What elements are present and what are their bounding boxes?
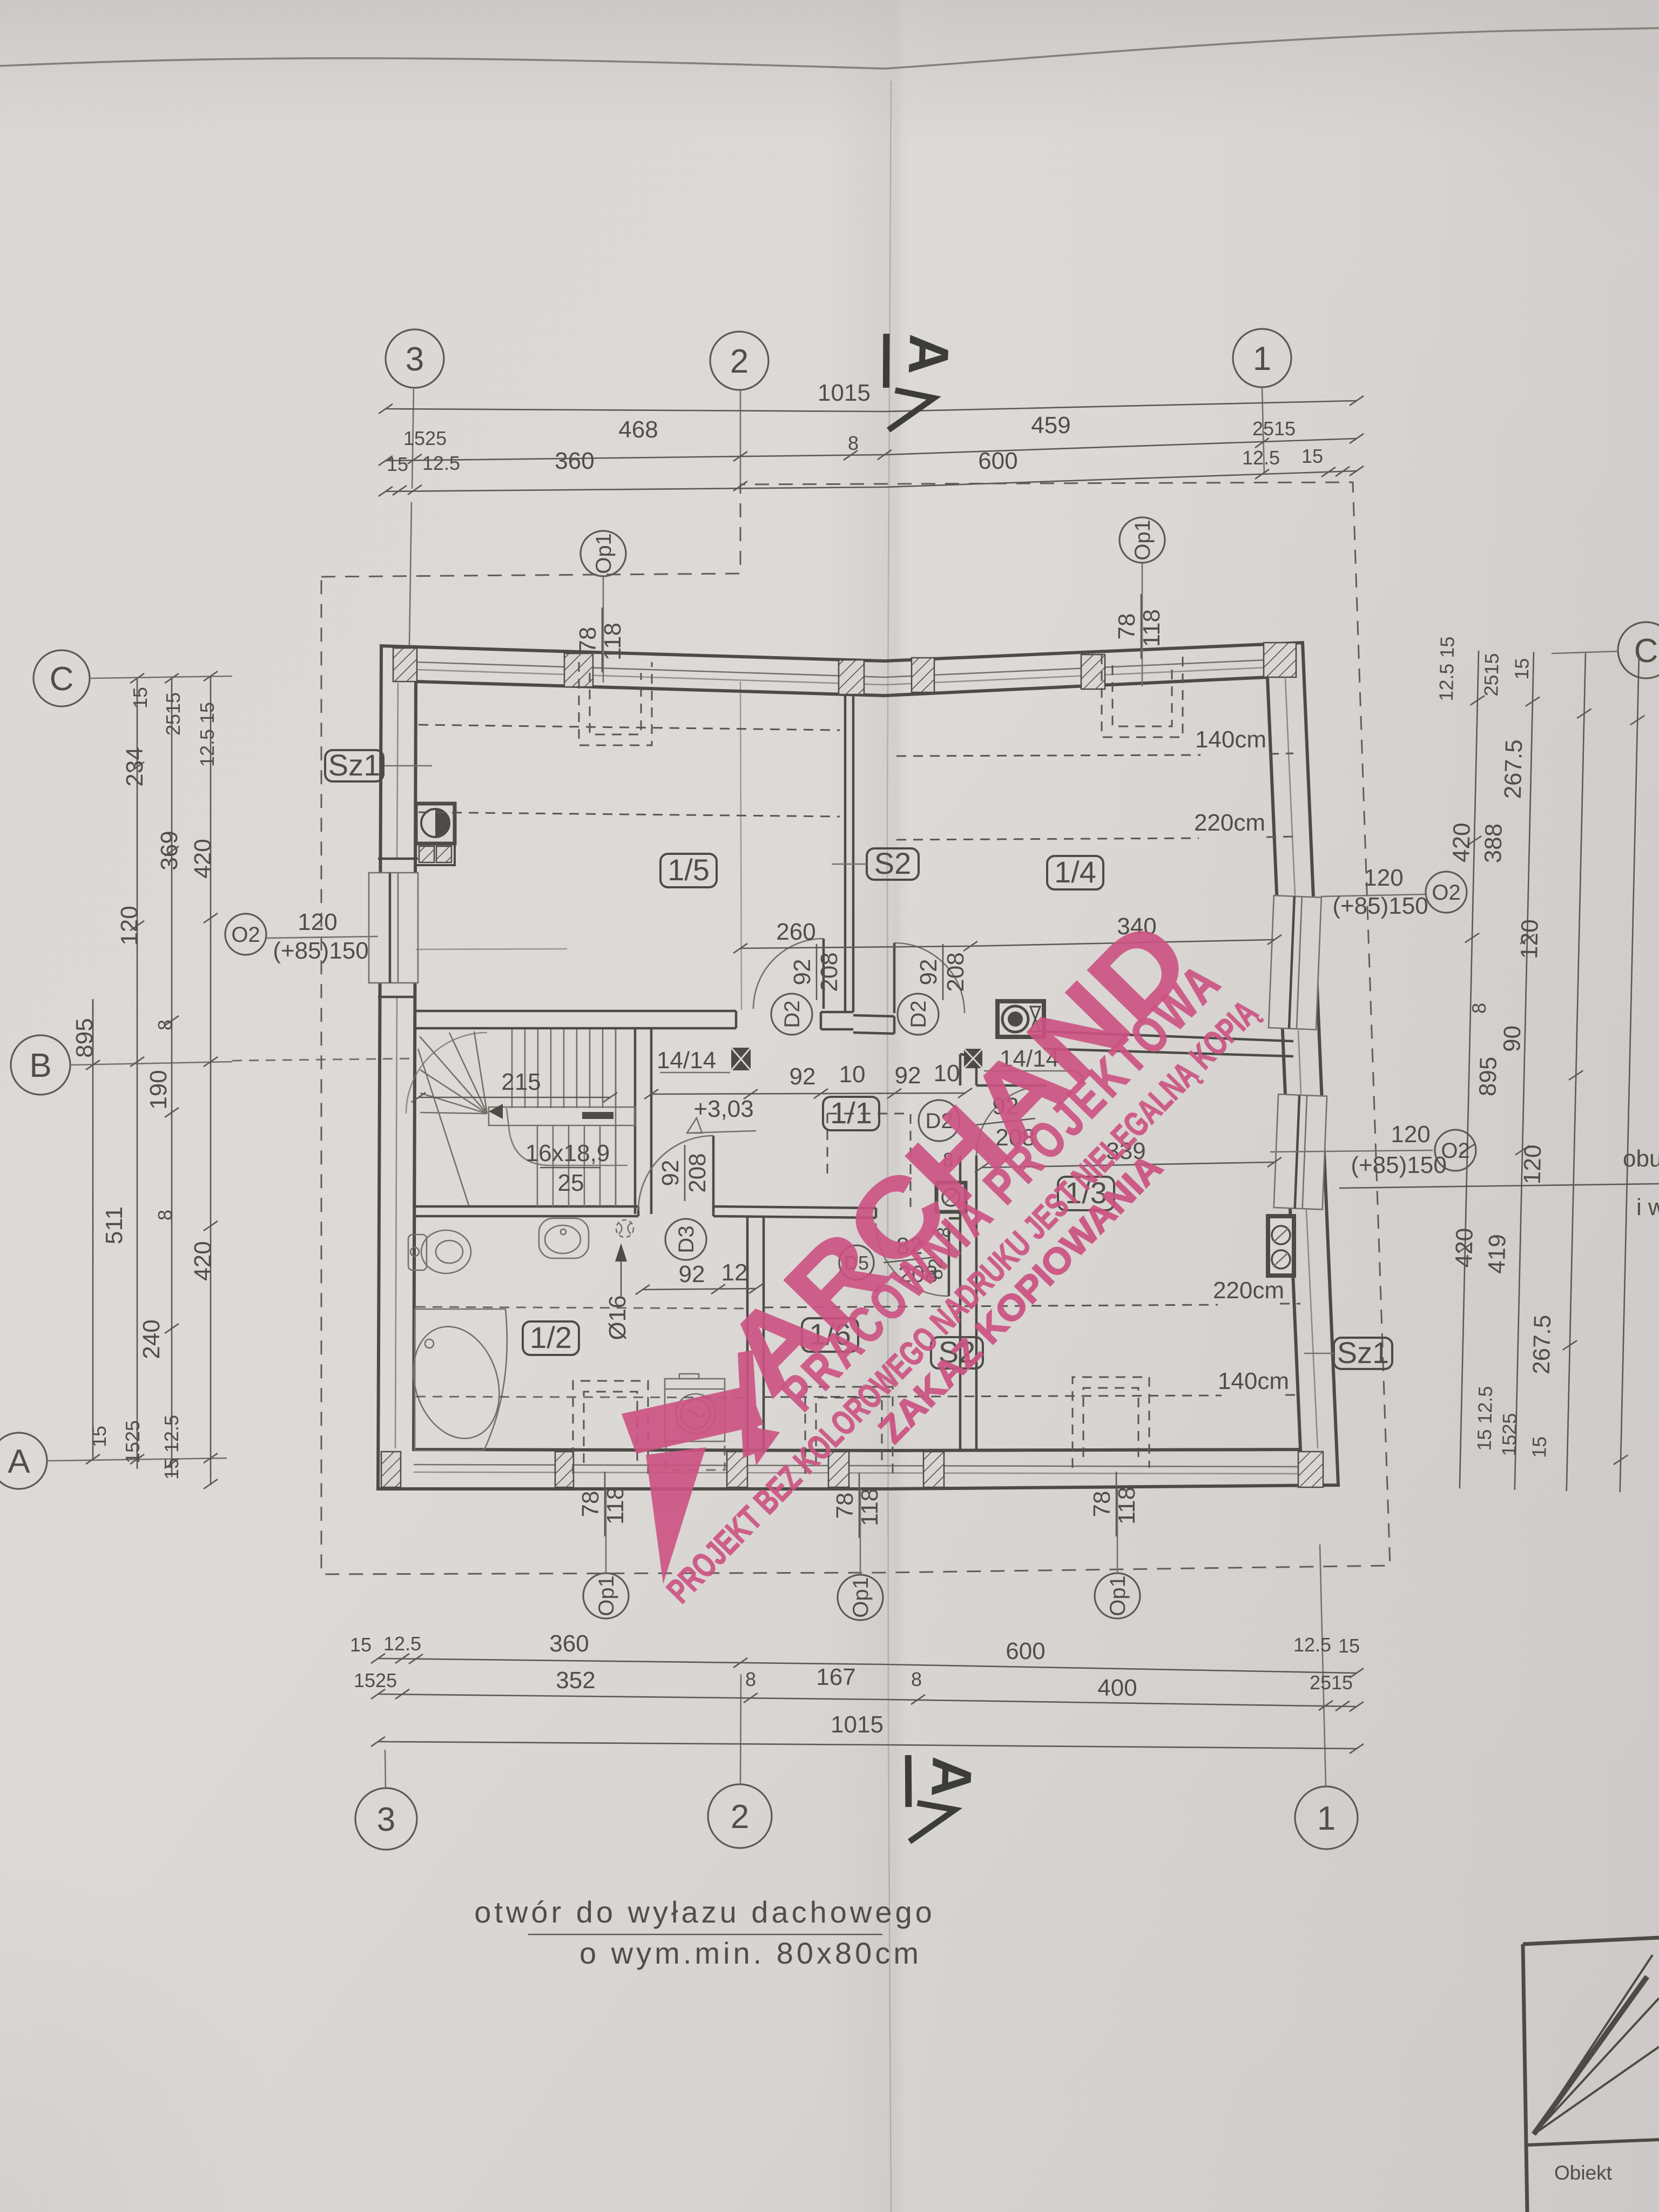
- svg-text:895: 895: [71, 1018, 98, 1057]
- svg-text:78: 78: [1089, 1491, 1115, 1518]
- svg-text:208: 208: [816, 952, 842, 992]
- svg-text:15: 15: [1510, 658, 1533, 680]
- svg-text:1525: 1525: [122, 1420, 144, 1464]
- svg-text:120: 120: [1391, 1121, 1430, 1148]
- svg-text:1: 1: [1317, 1800, 1336, 1837]
- svg-text:14/14: 14/14: [657, 1047, 716, 1074]
- svg-text:400: 400: [1097, 1675, 1137, 1701]
- svg-text:118: 118: [1114, 1487, 1140, 1525]
- svg-text:Op1: Op1: [1131, 520, 1155, 561]
- svg-text:140cm: 140cm: [1218, 1368, 1289, 1394]
- svg-text:895: 895: [1474, 1056, 1502, 1097]
- svg-text:120: 120: [1519, 1144, 1547, 1185]
- svg-text:240: 240: [138, 1319, 165, 1359]
- svg-text:1/4: 1/4: [1054, 855, 1096, 889]
- svg-text:2515: 2515: [1310, 1671, 1353, 1694]
- svg-text:468: 468: [618, 416, 658, 443]
- svg-text:8: 8: [154, 1020, 176, 1030]
- svg-text:otwór do wyłazu dachowego: otwór do wyłazu dachowego: [474, 1895, 935, 1929]
- svg-text:78: 78: [575, 627, 601, 653]
- svg-text:92: 92: [915, 959, 942, 986]
- svg-text:1/2: 1/2: [530, 1320, 572, 1354]
- svg-text:Obiekt: Obiekt: [1554, 2162, 1613, 2184]
- svg-text:(+85)150: (+85)150: [1332, 893, 1428, 919]
- svg-text:15: 15: [1528, 1436, 1550, 1458]
- svg-text:15: 15: [129, 687, 151, 709]
- svg-text:220cm: 220cm: [1194, 810, 1265, 836]
- svg-text:120: 120: [116, 906, 143, 945]
- svg-text:15: 15: [1301, 445, 1323, 467]
- svg-text:8: 8: [911, 1668, 922, 1690]
- svg-text:15: 15: [1338, 1635, 1360, 1657]
- svg-text:15: 15: [350, 1634, 372, 1656]
- svg-text:C: C: [1634, 632, 1658, 670]
- svg-text:1525: 1525: [354, 1669, 397, 1691]
- svg-text:208: 208: [942, 952, 969, 992]
- svg-text:420: 420: [190, 839, 216, 878]
- svg-text:118: 118: [599, 623, 626, 660]
- svg-text:360: 360: [555, 448, 594, 474]
- svg-text:388: 388: [1480, 823, 1507, 864]
- svg-text:D2: D2: [907, 1000, 930, 1028]
- svg-text:12.5 15: 12.5 15: [196, 702, 218, 767]
- svg-text:90: 90: [1499, 1025, 1526, 1052]
- svg-text:120: 120: [1516, 919, 1543, 960]
- svg-text:1: 1: [1253, 340, 1271, 377]
- svg-text:92: 92: [657, 1160, 684, 1186]
- svg-text:Op1: Op1: [849, 1577, 873, 1618]
- svg-text:78: 78: [1114, 613, 1140, 640]
- svg-text:8: 8: [848, 432, 859, 454]
- svg-text:15 12.5: 15 12.5: [160, 1415, 183, 1480]
- svg-text:420: 420: [190, 1241, 216, 1280]
- svg-text:A: A: [896, 333, 961, 376]
- svg-text:1/1: 1/1: [830, 1096, 872, 1130]
- svg-text:C: C: [50, 660, 74, 698]
- svg-text:12.5: 12.5: [383, 1633, 421, 1655]
- svg-text:118: 118: [857, 1488, 883, 1526]
- svg-text:369: 369: [156, 831, 183, 870]
- svg-text:B: B: [29, 1047, 51, 1084]
- svg-text:8: 8: [1468, 1003, 1490, 1014]
- svg-text:Sz1: Sz1: [328, 748, 381, 782]
- svg-text:Op1: Op1: [592, 533, 616, 574]
- svg-text:D2: D2: [780, 1000, 804, 1028]
- svg-text:10: 10: [839, 1061, 866, 1088]
- svg-text:120: 120: [1364, 865, 1403, 891]
- svg-text:o wym.min. 80x80cm: o wym.min. 80x80cm: [579, 1936, 922, 1970]
- svg-text:S2: S2: [874, 846, 912, 880]
- svg-text:15: 15: [387, 453, 408, 475]
- svg-text:A: A: [919, 1756, 983, 1798]
- svg-text:420: 420: [1448, 822, 1475, 863]
- svg-text:obud: obud: [1623, 1145, 1659, 1172]
- svg-text:O2: O2: [231, 923, 260, 947]
- svg-text:i w: i w: [1636, 1194, 1659, 1220]
- svg-text:120: 120: [298, 909, 337, 935]
- svg-text:12.5: 12.5: [1242, 447, 1280, 469]
- svg-text:260: 260: [776, 919, 815, 945]
- svg-text:167: 167: [816, 1664, 855, 1690]
- svg-text:2515: 2515: [1252, 417, 1296, 440]
- svg-text:A: A: [8, 1443, 30, 1480]
- svg-text:600: 600: [1006, 1638, 1045, 1664]
- svg-text:220cm: 220cm: [1213, 1277, 1284, 1304]
- svg-text:3: 3: [377, 1801, 395, 1838]
- svg-text:267.5: 267.5: [1500, 739, 1527, 799]
- svg-text:+3,03: +3,03: [693, 1096, 753, 1122]
- svg-text:3: 3: [406, 341, 424, 378]
- svg-text:92: 92: [895, 1062, 921, 1089]
- svg-text:419: 419: [1483, 1234, 1511, 1274]
- svg-text:Op1: Op1: [595, 1575, 618, 1616]
- svg-text:1015: 1015: [831, 1711, 884, 1738]
- svg-text:15 12.5: 15 12.5: [1473, 1386, 1496, 1451]
- svg-text:600: 600: [978, 448, 1017, 474]
- svg-text:2515: 2515: [1480, 653, 1503, 697]
- svg-text:352: 352: [556, 1667, 595, 1694]
- svg-text:360: 360: [549, 1630, 589, 1657]
- svg-text:234: 234: [122, 747, 148, 786]
- svg-text:O2: O2: [1432, 881, 1460, 905]
- svg-text:1525: 1525: [1498, 1413, 1521, 1456]
- svg-text:12.5: 12.5: [1293, 1634, 1331, 1656]
- svg-text:1015: 1015: [818, 380, 871, 406]
- svg-text:Sz1: Sz1: [1337, 1336, 1390, 1370]
- svg-text:Op1: Op1: [1106, 1575, 1130, 1616]
- svg-text:78: 78: [832, 1493, 858, 1519]
- svg-text:92: 92: [789, 959, 815, 986]
- svg-text:420: 420: [1451, 1228, 1478, 1268]
- svg-text:12.5: 12.5: [422, 452, 460, 474]
- svg-text:8: 8: [745, 1668, 756, 1690]
- svg-text:16x18,9: 16x18,9: [525, 1140, 610, 1166]
- svg-text:140cm: 140cm: [1195, 726, 1266, 753]
- svg-text:2515: 2515: [162, 692, 184, 736]
- svg-text:25: 25: [558, 1170, 584, 1196]
- svg-text:8: 8: [154, 1210, 176, 1220]
- svg-text:92: 92: [679, 1261, 705, 1287]
- svg-text:267.5: 267.5: [1528, 1314, 1556, 1374]
- svg-text:78: 78: [577, 1491, 604, 1518]
- svg-text:2: 2: [730, 343, 748, 380]
- svg-text:208: 208: [684, 1153, 711, 1192]
- svg-text:511: 511: [101, 1206, 127, 1244]
- svg-text:Ø16: Ø16: [604, 1295, 631, 1340]
- svg-text:1/5: 1/5: [667, 853, 710, 887]
- svg-text:15: 15: [88, 1426, 110, 1447]
- svg-text:2: 2: [731, 1798, 749, 1836]
- svg-text:190: 190: [145, 1070, 172, 1109]
- svg-text:D3: D3: [675, 1225, 698, 1253]
- svg-text:118: 118: [602, 1487, 629, 1525]
- svg-text:(+85)150: (+85)150: [1351, 1152, 1446, 1178]
- svg-text:(+85)150: (+85)150: [273, 938, 368, 964]
- svg-text:118: 118: [1138, 609, 1165, 647]
- svg-text:459: 459: [1031, 412, 1070, 439]
- svg-text:12: 12: [721, 1259, 748, 1286]
- svg-text:12.5 15: 12.5 15: [1435, 636, 1459, 702]
- svg-text:92: 92: [790, 1063, 816, 1090]
- svg-text:1525: 1525: [403, 427, 447, 449]
- svg-text:215: 215: [501, 1069, 541, 1095]
